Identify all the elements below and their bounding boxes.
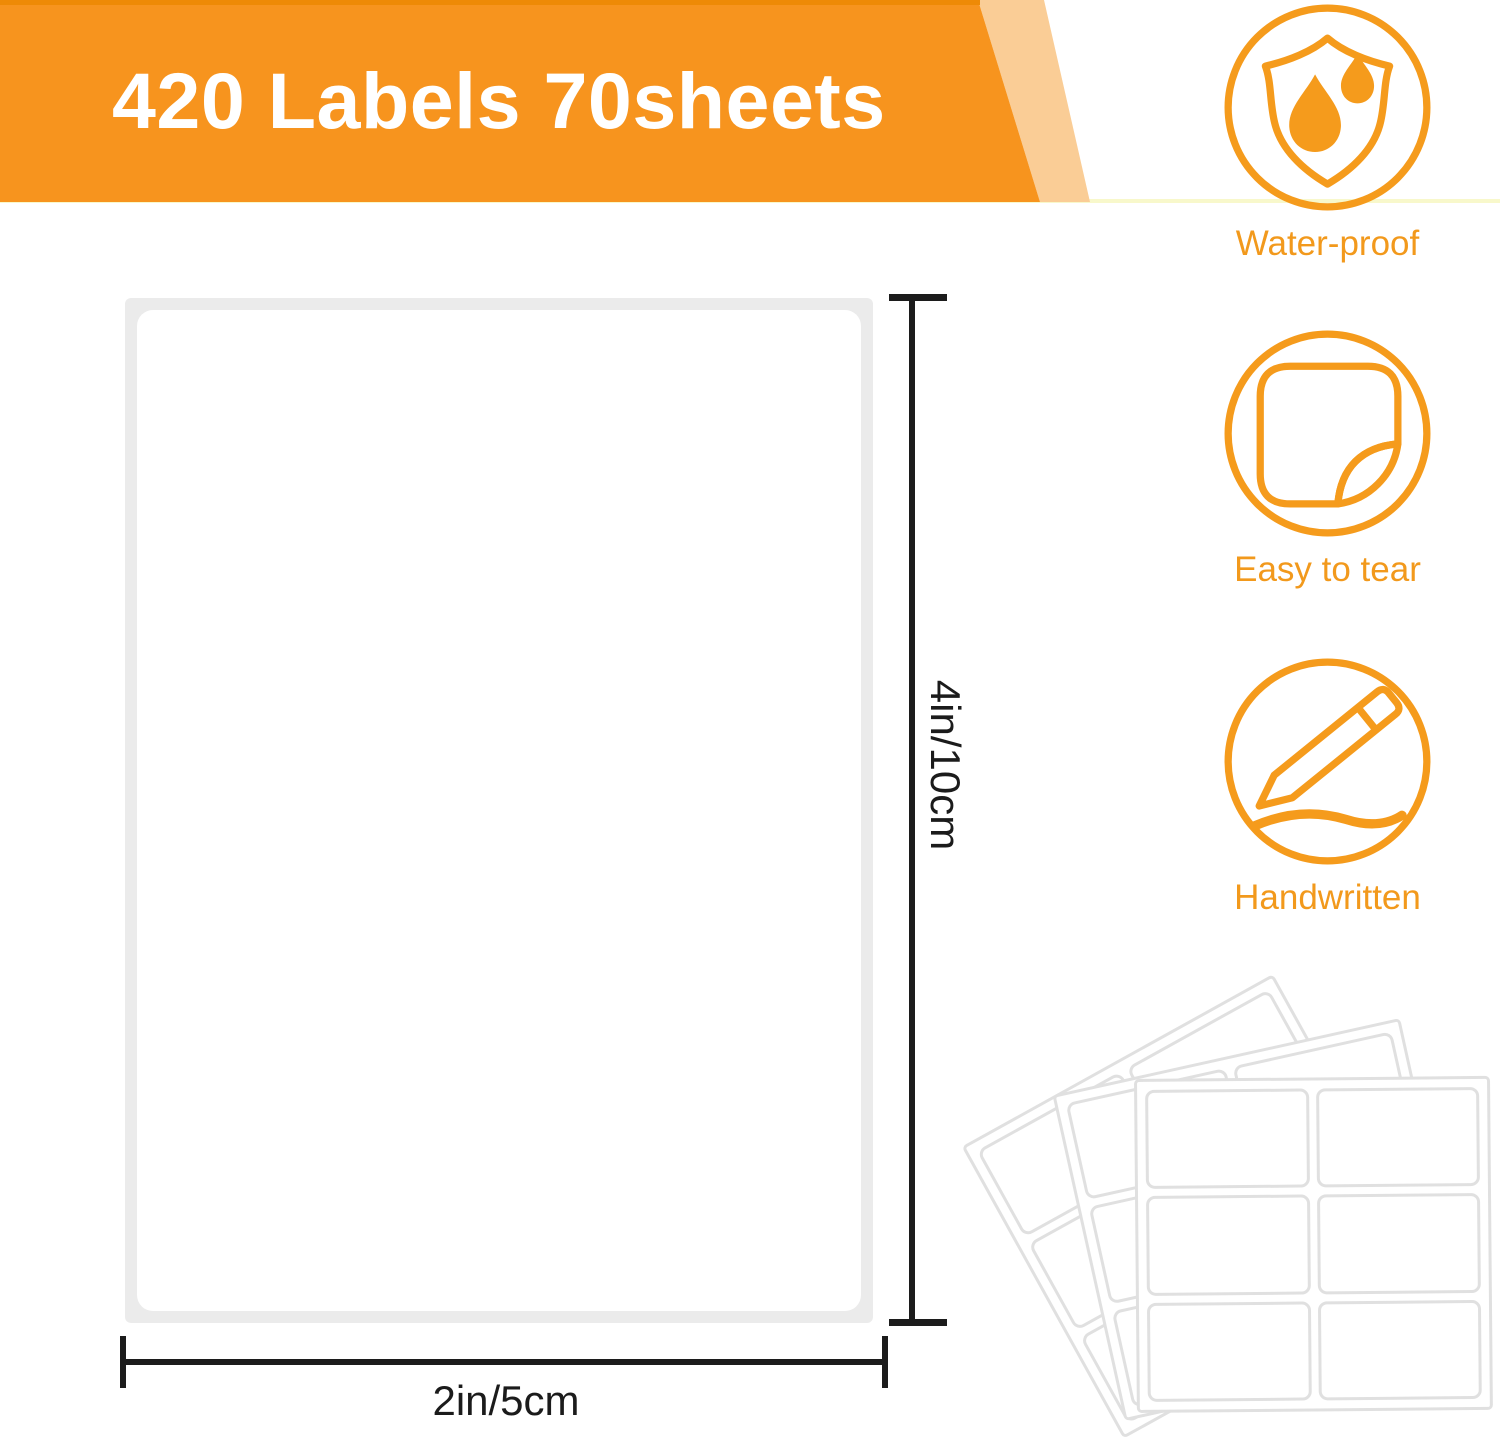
- width-dimension-line: [123, 1359, 885, 1365]
- handwritten-pencil-icon: [1224, 658, 1431, 865]
- label-cell: [1146, 1195, 1310, 1296]
- blank-label: [137, 310, 861, 1311]
- feature-waterproof: Water-proof: [1205, 4, 1450, 264]
- feature-label: Water-proof: [1205, 224, 1450, 264]
- feature-easy-to-tear: Easy to tear: [1205, 330, 1450, 590]
- label-diagram-backing: [125, 298, 873, 1323]
- easy-tear-sticker-icon: [1224, 330, 1431, 537]
- width-dimension-cap-right: [882, 1336, 888, 1388]
- label-cell: [1317, 1300, 1481, 1401]
- label-sheet-front: [1134, 1076, 1493, 1413]
- height-dimension-line: [909, 297, 915, 1323]
- height-dimension-label: 4in/10cm: [924, 615, 966, 915]
- height-dimension-cap-bottom: [889, 1319, 947, 1326]
- banner-title: 420 Labels 70sheets: [0, 0, 1000, 202]
- feature-handwritten: Handwritten: [1205, 658, 1450, 918]
- feature-label: Easy to tear: [1205, 550, 1450, 590]
- label-cell: [1316, 1087, 1480, 1188]
- feature-label: Handwritten: [1205, 878, 1450, 918]
- label-cell: [1147, 1301, 1311, 1402]
- width-dimension-label: 2in/5cm: [356, 1380, 656, 1422]
- label-cell: [1145, 1088, 1309, 1189]
- label-cell: [1317, 1193, 1481, 1294]
- height-dimension-cap-top: [889, 294, 947, 301]
- width-dimension-cap-left: [120, 1336, 126, 1388]
- waterproof-shield-icon: [1224, 4, 1431, 211]
